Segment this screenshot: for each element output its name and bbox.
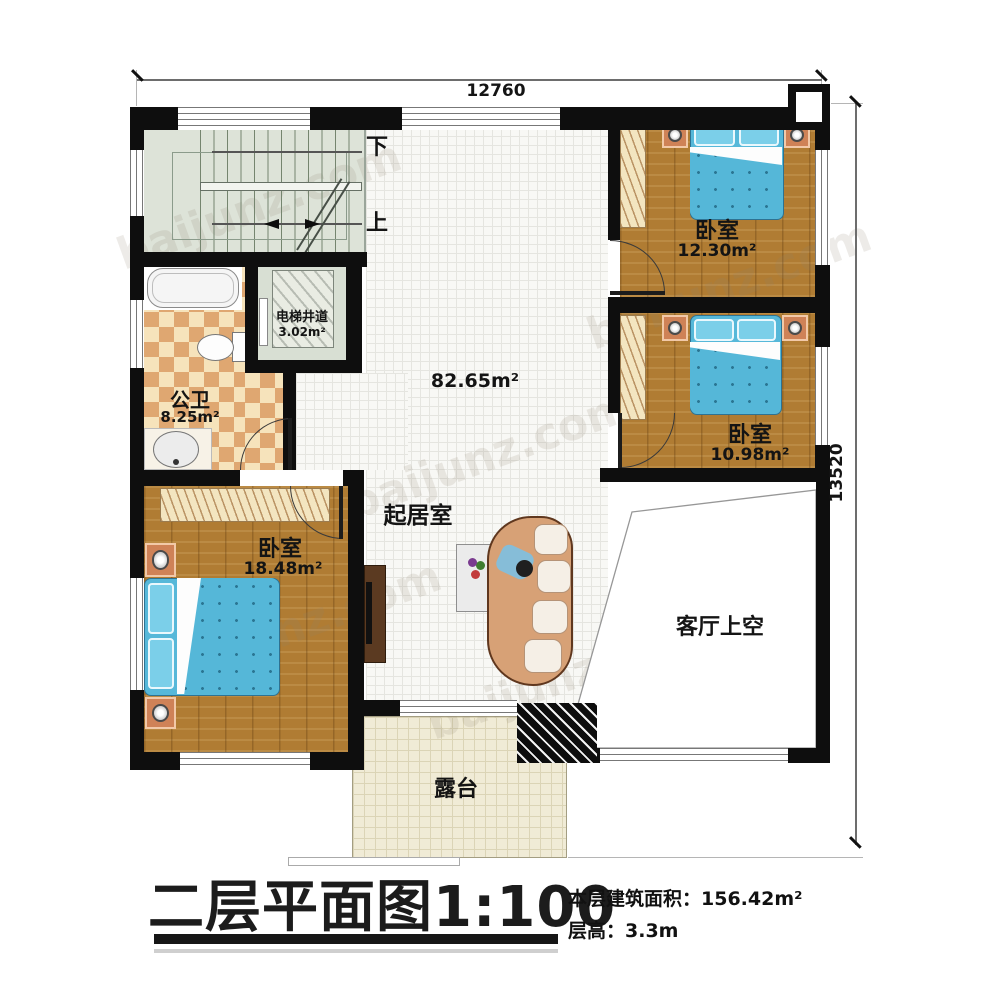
elevator-area-label: 3.02m²: [250, 326, 354, 339]
lamp-icon: [788, 321, 802, 335]
bedroom-tr-area-label: 12.30m²: [665, 243, 769, 261]
lamp-icon: [668, 128, 682, 142]
dimension-label-top: 12760: [446, 83, 546, 101]
window: [130, 578, 144, 690]
floor-plan-canvas: baijunz.com baijunz.com baijunz.com baij…: [0, 0, 1000, 990]
living-area-label: 82.65m²: [420, 372, 530, 392]
hall-nook-floor: [296, 373, 408, 470]
stair-guide-line-up: [212, 223, 362, 225]
title-underline-shadow: [154, 949, 558, 953]
bedroom-mr-area-label: 10.98m²: [698, 447, 802, 465]
wardrobe: [620, 315, 646, 420]
window: [815, 347, 830, 445]
wall-bedroom-mr-left: [608, 313, 620, 413]
wall-bedroom-mr-bottom: [600, 468, 830, 482]
flowers-icon: [468, 558, 477, 567]
stair-arrow-icon: [305, 219, 320, 229]
door-leaf: [339, 486, 343, 539]
sofa-cushion: [537, 560, 571, 593]
wall-bedroom-tr-bottom: [608, 297, 830, 313]
title-underline: [154, 934, 558, 944]
nightstand: [145, 697, 176, 729]
lamp-icon: [152, 550, 169, 569]
sliding-door: [400, 700, 517, 716]
floor-height-value: 3.3m: [625, 920, 678, 942]
bathroom-area-label: 8.25m²: [148, 410, 232, 426]
nightstand: [145, 543, 176, 577]
tv: [366, 582, 372, 644]
floor-height-line: 层高：3.3m: [568, 916, 678, 943]
stair-down-label: 下: [362, 136, 392, 159]
bedroom-mr-name-label: 卧室: [698, 424, 802, 447]
drawing-title-text: 二层平面图: [148, 875, 433, 940]
wall-void-bottom-right: [788, 748, 830, 763]
lamp-icon: [790, 128, 804, 142]
wall-living-bottom: [352, 700, 400, 716]
bedroom-tr-name-label: 卧室: [665, 220, 769, 243]
toilet: [197, 334, 234, 361]
wall-section-hatched: [517, 703, 597, 763]
stair-guide-line-down: [212, 151, 362, 153]
window: [180, 752, 310, 770]
bathtub: [147, 268, 239, 308]
pillow: [148, 638, 174, 689]
floor-area-label: 本层建筑面积：: [568, 888, 701, 910]
floor-area-line: 本层建筑面积：156.42m²: [568, 884, 802, 911]
sofa-cushion: [534, 524, 568, 555]
extension-line: [568, 857, 863, 858]
void-name-label: 客厅上空: [658, 616, 782, 639]
pillow: [694, 319, 734, 341]
exterior-wall-right-lower: [816, 482, 830, 763]
floor-area-value: 156.42m²: [701, 888, 802, 910]
nightstand: [782, 315, 808, 341]
wall-elevator-left: [245, 255, 258, 360]
window: [130, 300, 144, 368]
bathtub-inner: [152, 273, 234, 303]
sofa-cushion: [532, 600, 568, 634]
door-leaf: [610, 291, 665, 295]
bedroom-bl-area-label: 18.48m²: [230, 561, 336, 579]
wall-bedroom-bl-top: [343, 470, 364, 486]
pillow: [737, 319, 776, 341]
dimension-label-right: 13520: [829, 438, 847, 508]
window: [815, 150, 830, 265]
window: [402, 107, 560, 130]
stair-up-label: 上: [362, 212, 392, 235]
lamp-icon: [152, 704, 169, 722]
floor-height-label: 层高：: [568, 920, 625, 942]
terrace-name-label: 露台: [404, 778, 508, 801]
sink-faucet: [173, 459, 179, 465]
stair-arrow-icon: [264, 219, 279, 229]
wall-bedroom-tr-left: [608, 118, 620, 240]
wall-notch-inner: [796, 92, 822, 122]
drawing-title: 二层平面图1:100: [148, 862, 616, 943]
living-name-label: 起居室: [362, 504, 474, 528]
elevator-name-label: 电梯井道: [250, 311, 354, 325]
lamp-icon: [668, 321, 682, 335]
wall-elevator-bottom: [245, 360, 362, 373]
window: [130, 150, 144, 216]
bedroom-bl-name-label: 卧室: [230, 538, 330, 561]
window: [600, 748, 788, 763]
person-head: [516, 560, 533, 577]
sofa-cushion: [524, 639, 562, 673]
wardrobe: [620, 122, 646, 228]
wall-bathroom-bottom: [130, 470, 240, 486]
wall-bedroom-bl-right: [348, 486, 364, 770]
door-leaf: [288, 418, 292, 470]
door-leaf: [618, 413, 622, 468]
nightstand: [662, 315, 688, 341]
pillow: [148, 583, 174, 634]
window: [178, 107, 310, 130]
dimension-line-right: [855, 103, 857, 845]
